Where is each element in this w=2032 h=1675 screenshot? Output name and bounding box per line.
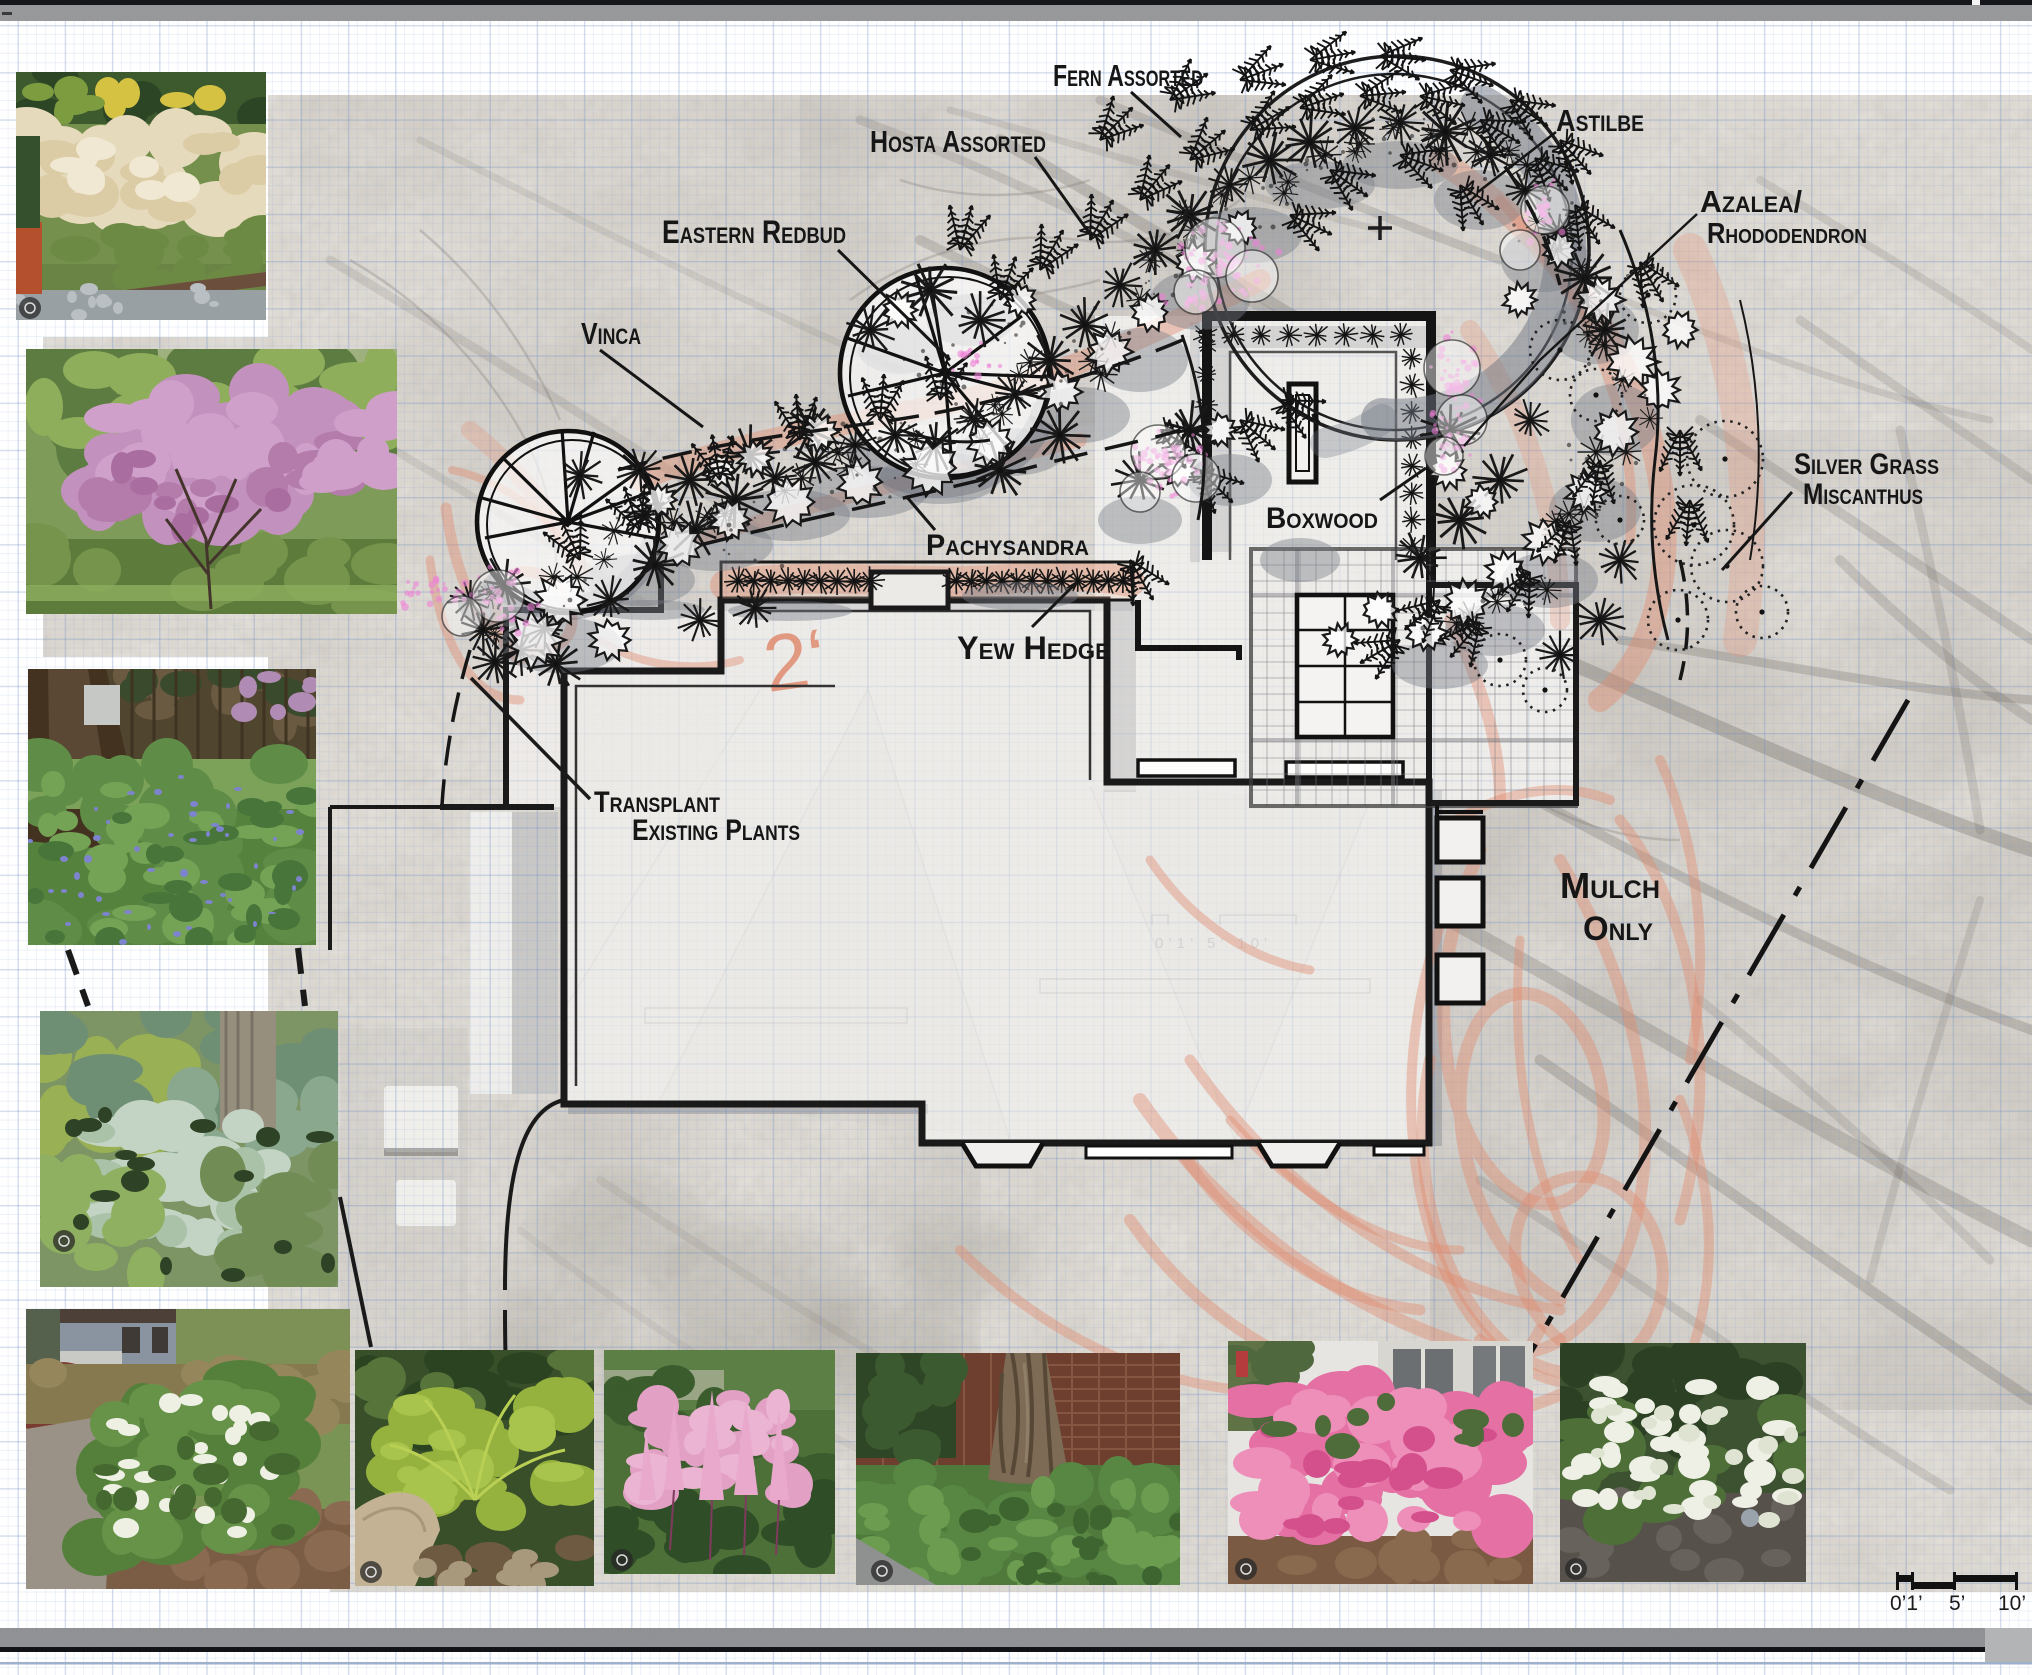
svg-text:Existing Plants: Existing Plants	[632, 814, 800, 847]
svg-text:Miscanthus: Miscanthus	[1803, 478, 1923, 511]
svg-text:Eastern Redbud: Eastern Redbud	[662, 214, 846, 250]
svg-text:Only: Only	[1583, 910, 1653, 948]
svg-text:Rhododendron: Rhododendron	[1707, 218, 1867, 250]
svg-text:Boxwood: Boxwood	[1266, 502, 1378, 535]
svg-text:2‘: 2‘	[758, 612, 832, 709]
svg-text:Silver Grass: Silver Grass	[1794, 448, 1939, 481]
svg-text:Vinca: Vinca	[581, 316, 641, 351]
svg-text:Yew Hedge: Yew Hedge	[957, 630, 1110, 666]
svg-text:Astilbe: Astilbe	[1556, 103, 1644, 138]
svg-text:Pachysandra: Pachysandra	[926, 529, 1089, 562]
svg-text:Azalea/: Azalea/	[1700, 184, 1802, 219]
svg-text:Hosta Assorted: Hosta Assorted	[870, 124, 1046, 159]
svg-text:Mulch: Mulch	[1560, 865, 1660, 906]
svg-text:Fern Assorted: Fern Assorted	[1053, 58, 1203, 93]
